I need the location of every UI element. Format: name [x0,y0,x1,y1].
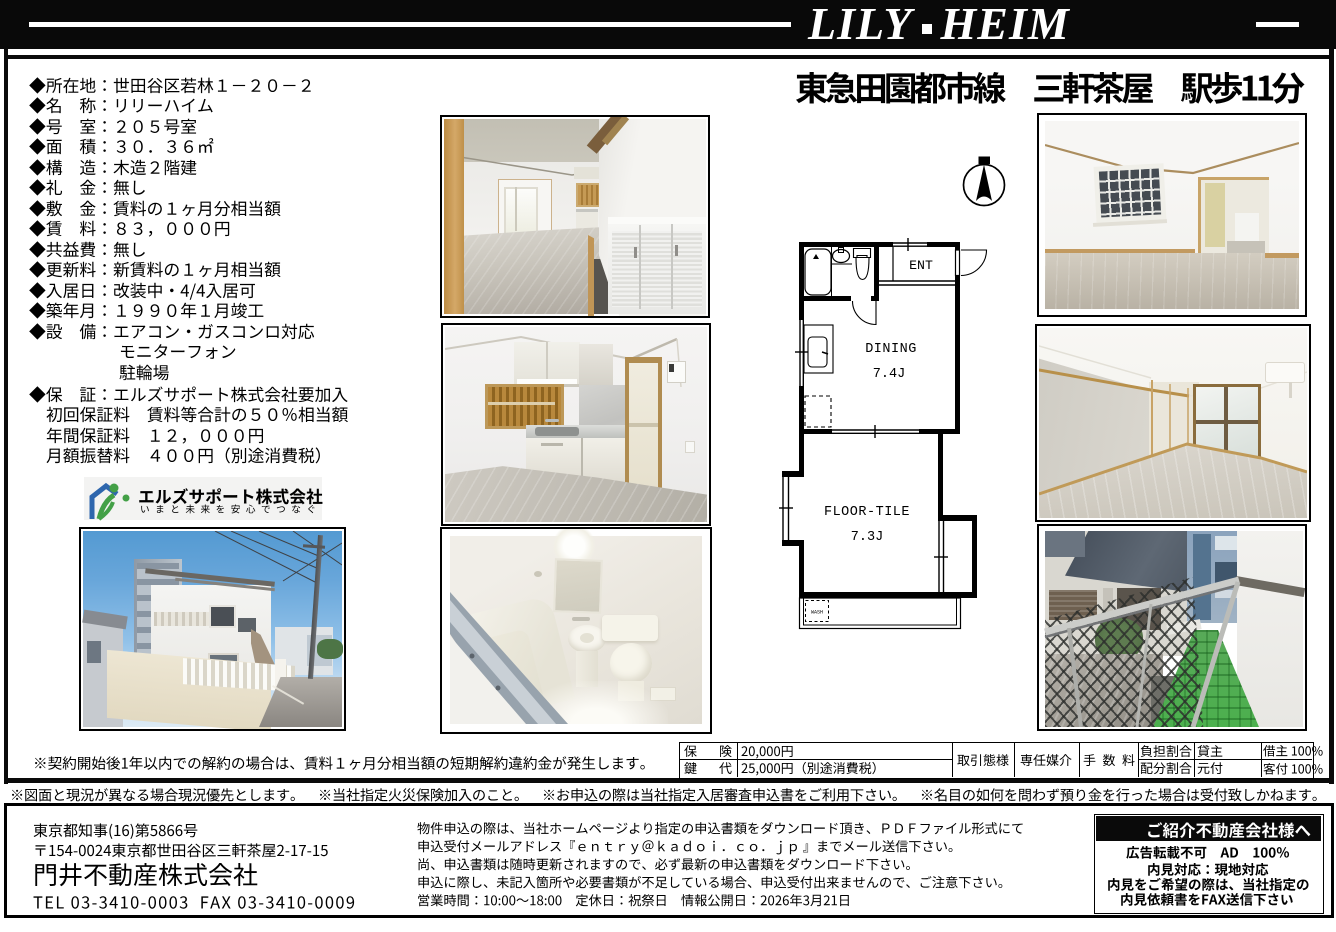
svg-text:DINING: DINING [865,342,917,357]
svg-text:7.3J: 7.3J [851,530,883,545]
svg-text:FLOOR-TILE: FLOOR-TILE [824,505,910,520]
svg-text:ENT: ENT [909,258,933,273]
svg-text:7.4J: 7.4J [873,367,905,382]
svg-text:WASH: WASH [811,610,823,616]
